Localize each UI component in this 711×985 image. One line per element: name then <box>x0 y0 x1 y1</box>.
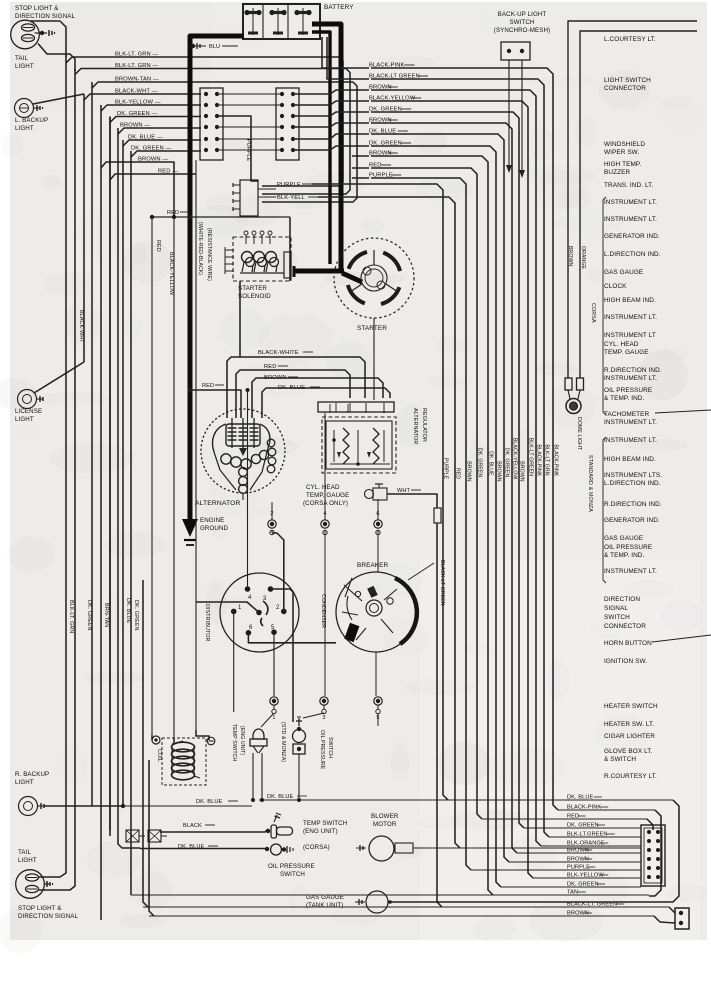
svg-text:BROWN: BROWN <box>567 911 589 917</box>
svg-text:& TEMP. IND.: & TEMP. IND. <box>604 552 645 559</box>
svg-text:STANDARD & MONZA: STANDARD & MONZA <box>587 455 593 512</box>
svg-text:BLOWER: BLOWER <box>371 813 399 820</box>
svg-text:L.DIRECTION IND.: L.DIRECTION IND. <box>604 480 661 487</box>
svg-text:& TEMP. IND.: & TEMP. IND. <box>604 395 645 402</box>
svg-text:TEMP. GAUGE: TEMP. GAUGE <box>306 492 349 499</box>
svg-text:SWITCH: SWITCH <box>509 19 534 26</box>
svg-text:CONDENSER: CONDENSER <box>320 594 326 628</box>
svg-text:BROWN: BROWN <box>567 246 573 267</box>
svg-text:DK. BLUE: DK. BLUE <box>567 795 593 801</box>
svg-text:RED: RED <box>202 383 214 389</box>
svg-text:GENERATOR IND.: GENERATOR IND. <box>604 233 660 240</box>
svg-text:LICENSE: LICENSE <box>15 408 42 415</box>
svg-text:(CORSA ONLY): (CORSA ONLY) <box>303 500 348 507</box>
svg-text:INSTRUMENT LTS.: INSTRUMENT LTS. <box>604 472 662 479</box>
svg-text:CLOCK: CLOCK <box>604 283 627 290</box>
svg-text:BLK-LT.GREEN: BLK-LT.GREEN <box>567 832 608 838</box>
svg-text:6: 6 <box>249 625 253 631</box>
svg-text:RED: RED <box>455 468 461 479</box>
svg-text:(SYNCHRO-MESH): (SYNCHRO-MESH) <box>494 27 550 34</box>
svg-text:R.DIRECTION IND.: R.DIRECTION IND. <box>604 501 662 508</box>
svg-text:DK. GREEN: DK. GREEN <box>567 823 599 829</box>
svg-text:INSTRUMENT LT.: INSTRUMENT LT. <box>604 314 657 321</box>
svg-text:BROWN: BROWN <box>567 848 589 854</box>
svg-text:STOP LIGHT &: STOP LIGHT & <box>15 5 59 12</box>
svg-text:BLACK-LT GREEN: BLACK-LT GREEN <box>439 560 445 606</box>
svg-text:BLK-YELLOW: BLK-YELLOW <box>567 873 604 879</box>
svg-text:BLACK-YELLOW: BLACK-YELLOW <box>512 438 518 480</box>
svg-text:DK. GREEN: DK. GREEN <box>504 448 510 478</box>
svg-text:BACK-UP LIGHT: BACK-UP LIGHT <box>498 11 547 18</box>
svg-text:STARTER: STARTER <box>357 325 387 332</box>
svg-text:BLACK: BLACK <box>183 823 202 829</box>
svg-text:RED: RED <box>264 364 277 370</box>
svg-text:CIGAR LIGHTER: CIGAR LIGHTER <box>604 733 655 740</box>
svg-text:2: 2 <box>276 605 280 611</box>
svg-text:INSTRUMENT LT.: INSTRUMENT LT. <box>604 216 657 223</box>
svg-text:TAIL: TAIL <box>15 55 28 62</box>
svg-text:HIGH BEAM IND.: HIGH BEAM IND. <box>604 456 656 463</box>
svg-text:BROWN: BROWN <box>466 461 472 482</box>
svg-text:5: 5 <box>271 625 275 631</box>
svg-text:PURPLE: PURPLE <box>277 182 301 188</box>
svg-text:LIGHT: LIGHT <box>18 857 37 864</box>
svg-text:LIGHT: LIGHT <box>15 779 34 786</box>
svg-text:OIL PRESSURE: OIL PRESSURE <box>319 730 325 770</box>
svg-text:PURPLE: PURPLE <box>245 139 251 161</box>
svg-text:(ENG UNIT): (ENG UNIT) <box>239 726 245 755</box>
svg-text:RED: RED <box>155 240 161 252</box>
svg-text:PURPLE: PURPLE <box>443 458 449 480</box>
svg-text:CYL. HEAD: CYL. HEAD <box>306 484 340 491</box>
svg-text:1: 1 <box>272 715 275 721</box>
svg-text:BLACK-WHITE: BLACK-WHITE <box>258 350 299 356</box>
svg-text:L. BACKUP: L. BACKUP <box>15 117 48 124</box>
svg-text:R.COURTESY LT.: R.COURTESY LT. <box>604 773 657 780</box>
svg-text:INSTRUMENT LT.: INSTRUMENT LT. <box>604 568 657 575</box>
svg-text:SWITCH: SWITCH <box>280 871 305 878</box>
svg-text:SWITCH: SWITCH <box>327 737 333 758</box>
svg-text:STOP LIGHT &: STOP LIGHT & <box>18 905 62 912</box>
svg-text:LIGHT SWITCH: LIGHT SWITCH <box>604 77 651 84</box>
svg-text:BLK-LT. GRN: BLK-LT. GRN <box>68 600 74 633</box>
svg-text:BROWN: BROWN <box>567 857 589 863</box>
svg-text:DK. GREEN: DK. GREEN <box>567 882 599 888</box>
svg-text:1: 1 <box>238 605 242 611</box>
svg-text:TEMP SWITCH: TEMP SWITCH <box>303 820 347 827</box>
svg-text:BROWN: BROWN <box>496 461 502 482</box>
svg-text:HEATER SW. LT.: HEATER SW. LT. <box>604 721 654 728</box>
svg-text:DISTRIBUTOR: DISTRIBUTOR <box>204 604 210 642</box>
svg-text:CONNECTOR: CONNECTOR <box>604 623 646 630</box>
svg-text:BLK-LT GRN: BLK-LT GRN <box>544 445 550 476</box>
svg-text:HEATER SWITCH: HEATER SWITCH <box>604 703 658 710</box>
svg-text:OIL PRESSURE: OIL PRESSURE <box>604 387 652 394</box>
svg-text:BUZZER: BUZZER <box>604 169 630 176</box>
svg-text:INSTRUMENT LT.: INSTRUMENT LT. <box>604 375 657 382</box>
svg-text:TAIL: TAIL <box>18 849 31 856</box>
svg-text:DIRECTION SIGNAL: DIRECTION SIGNAL <box>18 913 79 920</box>
svg-text:BLU: BLU <box>209 44 220 50</box>
svg-text:R. BACKUP: R. BACKUP <box>15 771 49 778</box>
svg-text:SIGNAL: SIGNAL <box>604 605 628 612</box>
svg-text:RED: RED <box>567 814 579 820</box>
svg-text:DIRECTION SIGNAL: DIRECTION SIGNAL <box>15 13 76 20</box>
svg-text:(STD & MONZA): (STD & MONZA) <box>280 722 286 762</box>
svg-text:OIL PRESSURE: OIL PRESSURE <box>604 544 652 551</box>
svg-text:WINDSHIELD: WINDSHIELD <box>604 141 645 148</box>
svg-text:WIPER SW.: WIPER SW. <box>604 149 639 156</box>
svg-text:BLACK-YELLOW: BLACK-YELLOW <box>168 252 174 296</box>
svg-text:DK. BLUE: DK. BLUE <box>267 794 293 800</box>
svg-text:BREAKER: BREAKER <box>357 562 389 569</box>
svg-text:CYL. HEAD: CYL. HEAD <box>604 341 639 348</box>
svg-text:BLACK-WHT: BLACK-WHT <box>78 310 84 343</box>
svg-text:L.DIRECTION IND.: L.DIRECTION IND. <box>604 251 661 258</box>
svg-text:DK. GREEN: DK. GREEN <box>477 448 483 478</box>
svg-text:DOME LIGHT: DOME LIGHT <box>576 417 582 451</box>
svg-text:BLACK-PINK: BLACK-PINK <box>536 445 542 477</box>
svg-text:TEMP SWITCH: TEMP SWITCH <box>231 724 237 761</box>
svg-text:CORSA: CORSA <box>590 303 596 323</box>
svg-text:MOTOR: MOTOR <box>373 821 397 828</box>
svg-text:ALTERNATOR: ALTERNATOR <box>195 500 241 507</box>
svg-text:DK. BLUE: DK. BLUE <box>196 799 222 805</box>
svg-text:INSTRUMENT LT.: INSTRUMENT LT. <box>604 199 657 206</box>
svg-text:REGULATOR: REGULATOR <box>421 408 427 442</box>
svg-text:WHT: WHT <box>397 488 411 494</box>
svg-text:CONNECTOR: CONNECTOR <box>604 85 646 92</box>
svg-text:INSTRUMENT LT.: INSTRUMENT LT. <box>604 419 657 426</box>
svg-text:HIGH TEMP.: HIGH TEMP. <box>604 161 641 168</box>
svg-text:4: 4 <box>248 595 252 601</box>
svg-text:3: 3 <box>322 715 325 721</box>
svg-text:GROUND: GROUND <box>200 525 229 532</box>
svg-text:ALTERNATOR: ALTERNATOR <box>412 408 418 444</box>
svg-text:BRN-TAN: BRN-TAN <box>103 603 109 627</box>
svg-text:& SWITCH: & SWITCH <box>604 756 636 763</box>
svg-text:L.COURTESY LT.: L.COURTESY LT. <box>604 36 656 43</box>
svg-text:PURPLE: PURPLE <box>567 865 590 871</box>
svg-text:(RESISTANCE WIRE): (RESISTANCE WIRE) <box>206 228 212 281</box>
svg-text:DK. BLUE: DK. BLUE <box>125 598 131 624</box>
svg-text:BATTERY: BATTERY <box>324 4 354 11</box>
svg-text:OIL PRESSURE: OIL PRESSURE <box>268 863 315 870</box>
svg-text:INSTRUMENT LT: INSTRUMENT LT <box>604 332 656 339</box>
svg-text:(TANK UNIT): (TANK UNIT) <box>306 902 343 909</box>
svg-text:SOLENOID: SOLENOID <box>238 293 271 300</box>
svg-text:DK. GREEN: DK. GREEN <box>86 600 92 631</box>
svg-text:(ENG UNIT): (ENG UNIT) <box>303 828 338 835</box>
svg-text:TRANS. IND. LT.: TRANS. IND. LT. <box>604 182 653 189</box>
svg-text:(CORSA): (CORSA) <box>303 844 330 851</box>
svg-text:LIGHT: LIGHT <box>15 63 34 70</box>
svg-text:BLACK-PINK: BLACK-PINK <box>553 445 559 477</box>
svg-text:GLOVE BOX LT.: GLOVE BOX LT. <box>604 748 653 755</box>
svg-text:STARTER: STARTER <box>238 285 267 292</box>
svg-text:R.DIRECTION IND.: R.DIRECTION IND. <box>604 367 662 374</box>
svg-text:TAN: TAN <box>567 890 578 896</box>
svg-text:IGNITION SW.: IGNITION SW. <box>604 658 647 665</box>
svg-text:GAS GAUGE: GAS GAUGE <box>604 269 643 276</box>
svg-text:SWITCH: SWITCH <box>604 614 630 621</box>
svg-text:INSTRUMENT LT.: INSTRUMENT LT. <box>604 437 657 444</box>
svg-text:ENGINE: ENGINE <box>200 517 224 524</box>
svg-text:BLK-ORANGE: BLK-ORANGE <box>567 841 605 847</box>
svg-text:COIL: COIL <box>156 749 162 762</box>
svg-text:BLACK-PINK: BLACK-PINK <box>567 805 601 811</box>
svg-text:GAS GAUGE: GAS GAUGE <box>604 535 643 542</box>
svg-text:DIRECTION: DIRECTION <box>604 596 640 603</box>
svg-text:DK. GREEN: DK. GREEN <box>133 600 139 631</box>
svg-text:DK. BLUE: DK. BLUE <box>488 451 494 476</box>
svg-text:ORANGE: ORANGE <box>580 246 586 270</box>
svg-text:TACHOMETER: TACHOMETER <box>604 411 650 418</box>
svg-text:BLK-YELL: BLK-YELL <box>277 195 306 201</box>
svg-text:GENERATOR IND.: GENERATOR IND. <box>604 517 660 524</box>
svg-text:HIGH BEAM IND.: HIGH BEAM IND. <box>604 297 656 304</box>
svg-text:LIGHT: LIGHT <box>15 125 34 132</box>
svg-text:HORN BUTTON: HORN BUTTON <box>604 640 652 647</box>
svg-text:(WHITE-RED-BLACK): (WHITE-RED-BLACK) <box>197 222 203 275</box>
svg-text:LIGHT: LIGHT <box>15 416 34 423</box>
svg-text:BLK-LT GREEN: BLK-LT GREEN <box>528 438 534 476</box>
svg-text:TEMP. GAUGE: TEMP. GAUGE <box>604 349 649 356</box>
svg-text:BROWN: BROWN <box>519 461 525 482</box>
